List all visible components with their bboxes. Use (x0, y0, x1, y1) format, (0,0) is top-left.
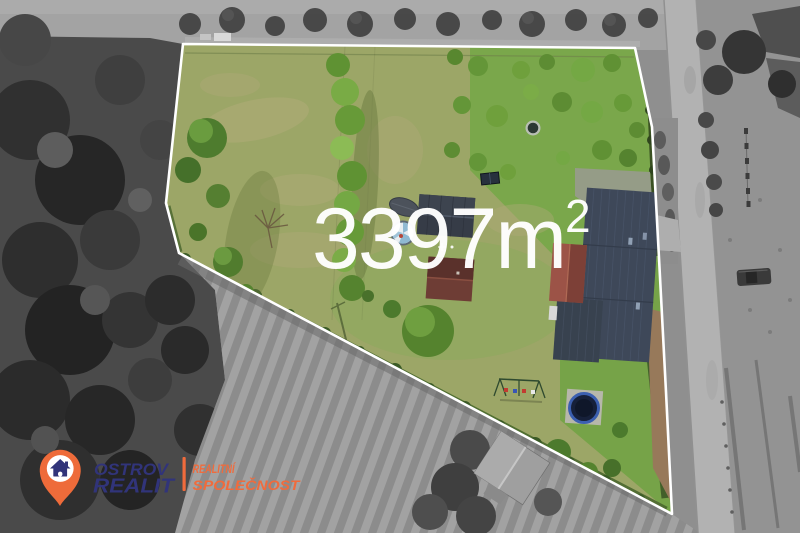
area-superscript: 2 (565, 190, 591, 242)
parked-car (736, 268, 771, 286)
logo-brand-line2: REALIT (93, 475, 176, 498)
garden-pond (526, 121, 541, 136)
area-value: 3397m (312, 191, 565, 287)
area-label: 3397m2 (312, 190, 591, 287)
white-object (549, 306, 558, 321)
main-house-roof-west-wing (553, 297, 603, 362)
logo-tagline-line1: REALITNÍ (193, 461, 237, 476)
skylight (643, 233, 647, 240)
skylight (628, 238, 632, 245)
logo-divider (183, 457, 186, 491)
parked-trailer (200, 33, 231, 41)
skylight (636, 302, 640, 309)
scene-canvas: 3397m2 OSTROV REALIT REALITNÍ SPOLEČNOST (0, 0, 800, 533)
logo-tagline-line2: SPOLEČNOST (193, 478, 302, 493)
aerial-property-photo: 3397m2 OSTROV REALIT REALITNÍ SPOLEČNOST (0, 0, 800, 533)
solar-panel (481, 172, 500, 185)
trampoline (565, 389, 603, 425)
